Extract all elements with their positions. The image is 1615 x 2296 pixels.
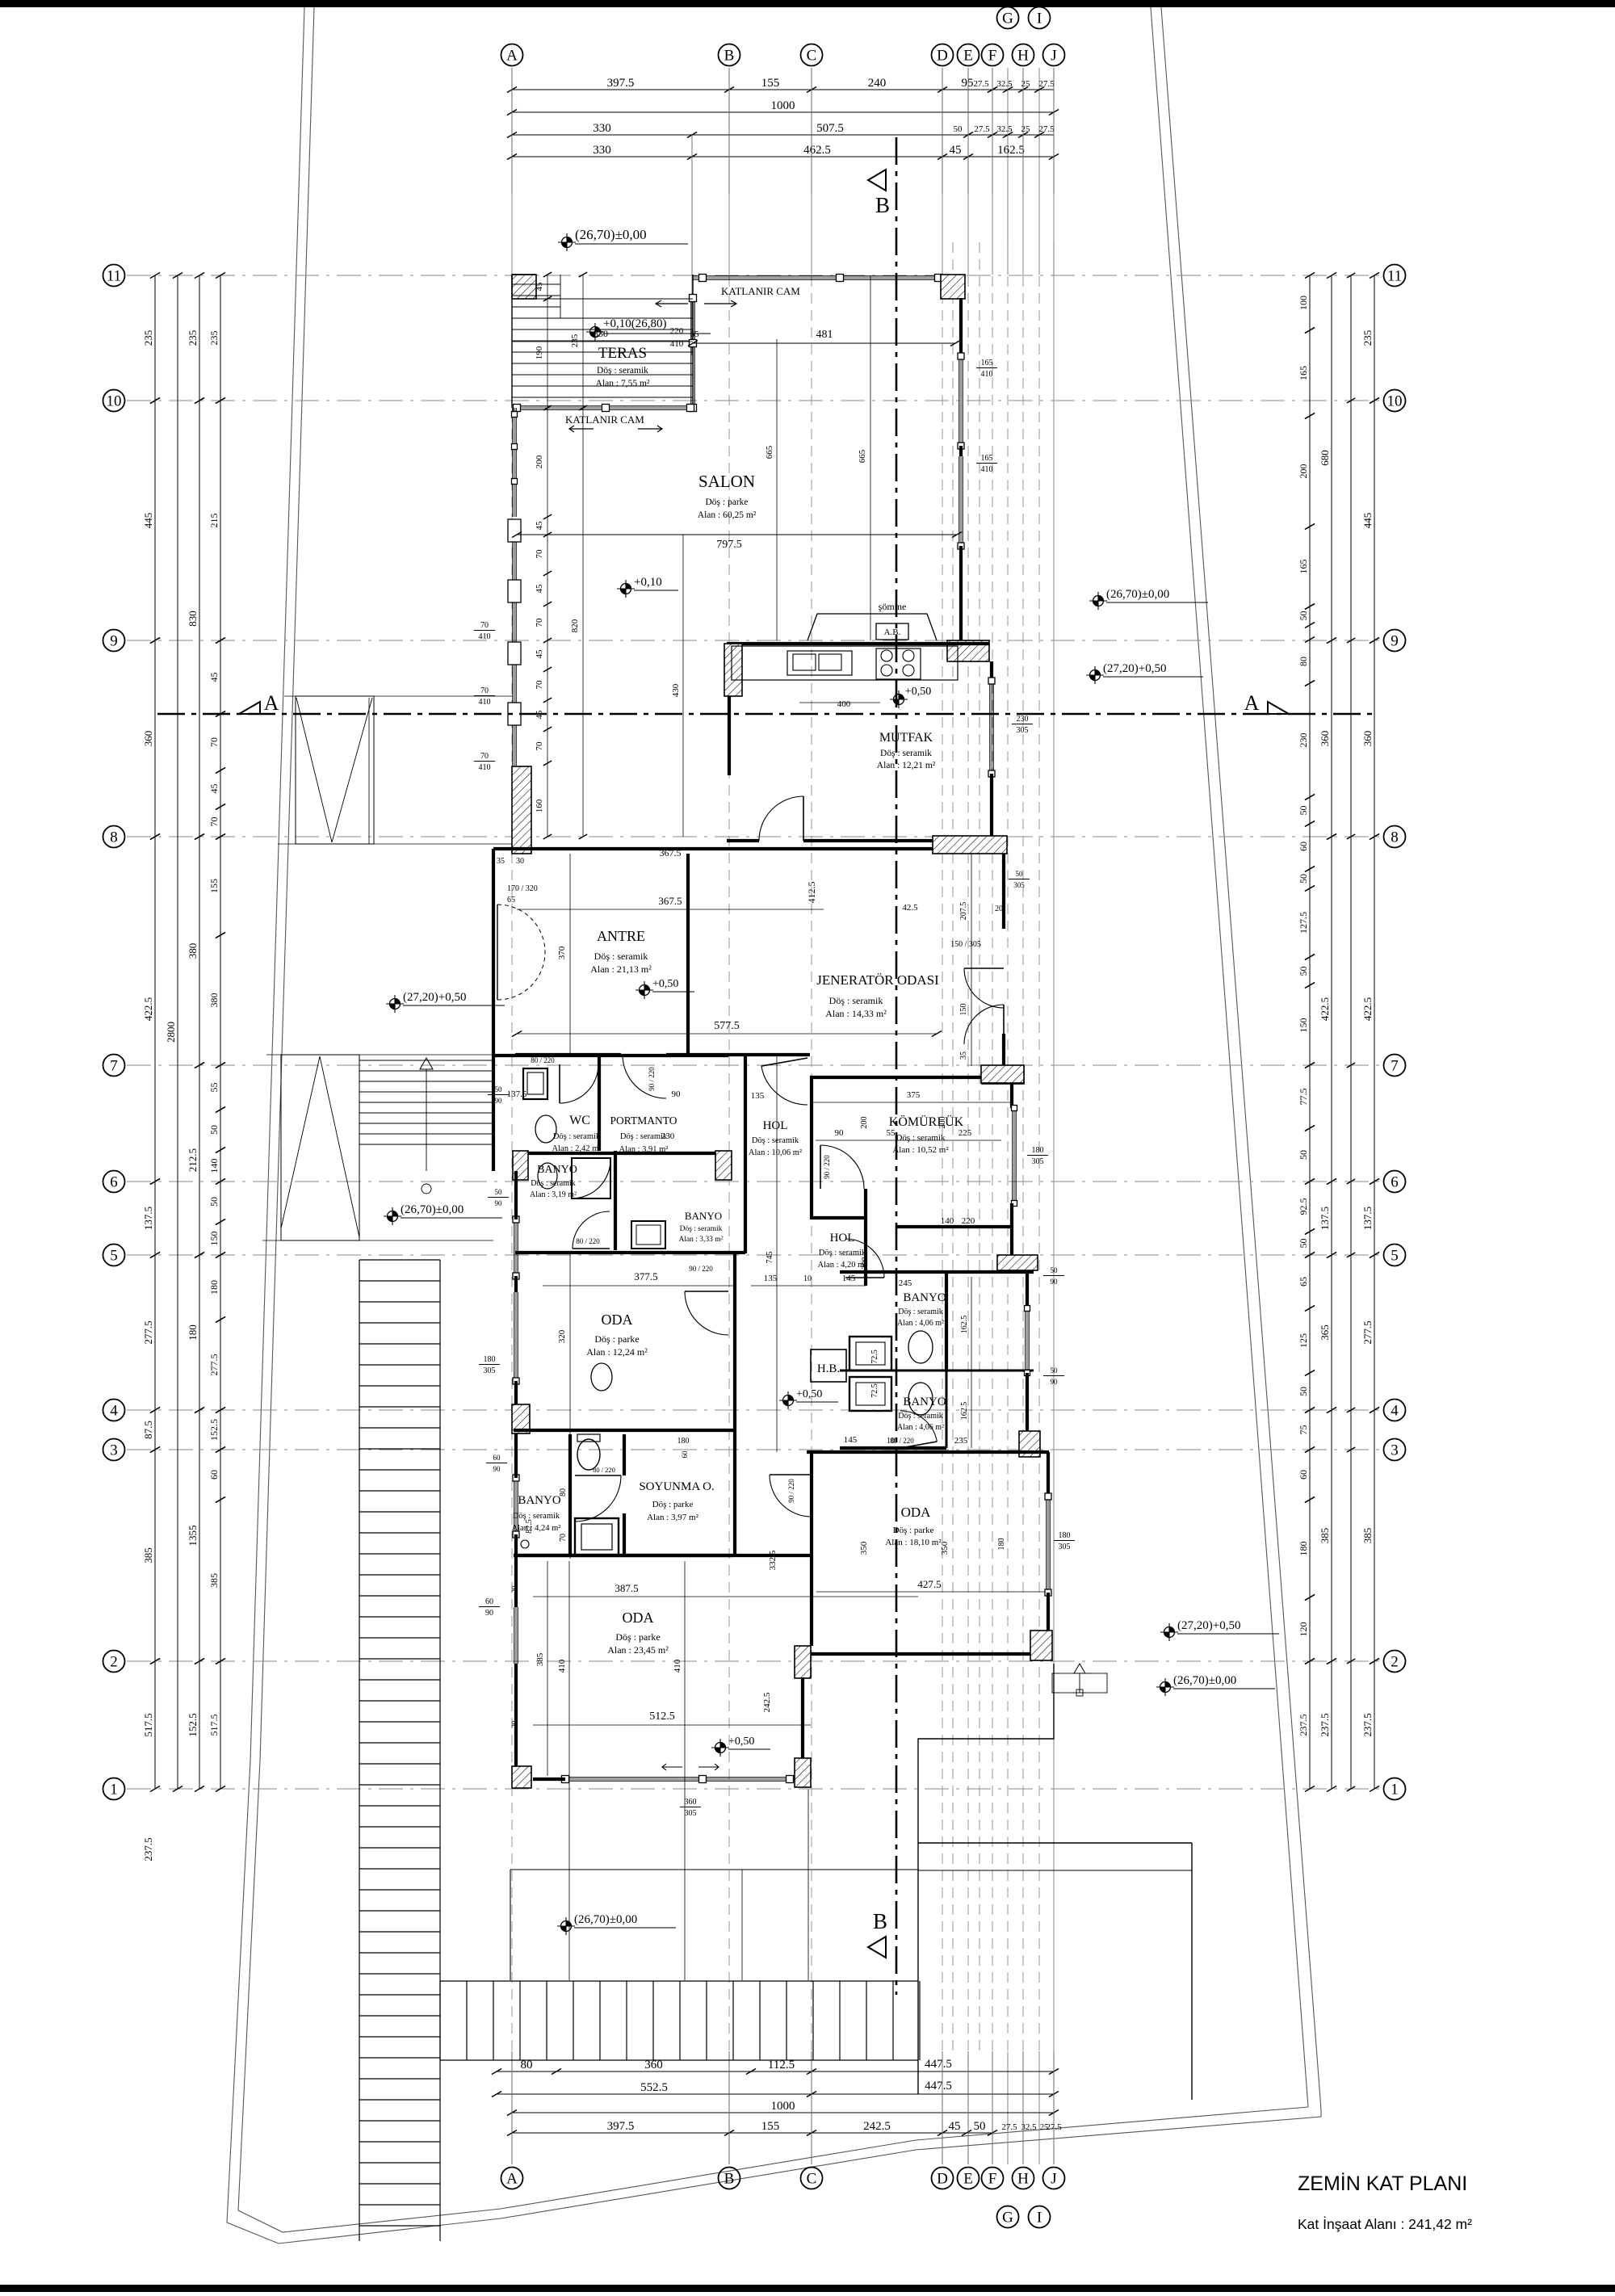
svg-text:82.5: 82.5 (525, 1519, 534, 1534)
svg-text:70: 70 (208, 817, 220, 827)
svg-text:4: 4 (1391, 1402, 1399, 1419)
svg-text:50: 50 (1051, 1266, 1059, 1274)
svg-text:70: 70 (480, 752, 489, 761)
svg-text:5: 5 (1391, 1247, 1399, 1264)
svg-text:332.5: 332.5 (768, 1550, 778, 1570)
svg-text:665: 665 (765, 445, 774, 459)
svg-text:410: 410 (670, 339, 684, 349)
svg-text:360: 360 (1361, 731, 1374, 747)
svg-text:387.5: 387.5 (615, 1582, 638, 1594)
svg-text:360: 360 (685, 1798, 697, 1807)
svg-text:Döş : seramik: Döş : seramik (513, 1512, 560, 1521)
svg-text:50: 50 (1298, 1150, 1309, 1160)
svg-text:HOL: HOL (763, 1119, 788, 1132)
svg-text:SALON: SALON (698, 472, 755, 491)
svg-text:165: 165 (1298, 366, 1309, 380)
svg-text:50: 50 (1298, 1239, 1309, 1249)
svg-text:WC: WC (569, 1114, 590, 1127)
svg-text:Döş : seramik: Döş : seramik (680, 1225, 723, 1233)
svg-text:11: 11 (1387, 267, 1402, 284)
svg-text:180: 180 (208, 1280, 220, 1295)
svg-text:1355: 1355 (187, 1526, 199, 1547)
svg-text:80: 80 (559, 1488, 568, 1496)
svg-text:385: 385 (1361, 1528, 1374, 1544)
svg-text:410: 410 (981, 370, 993, 379)
svg-text:32.5: 32.5 (996, 79, 1013, 89)
svg-text:A: A (264, 691, 279, 715)
svg-text:422.5: 422.5 (142, 997, 154, 1021)
svg-text:(26,70)±0,00: (26,70)±0,00 (1173, 1674, 1236, 1687)
svg-text:237.5: 237.5 (1319, 1713, 1331, 1736)
svg-text:512.5: 512.5 (649, 1710, 675, 1723)
svg-text:ZEMİN KAT PLANI: ZEMİN KAT PLANI (1298, 2172, 1467, 2195)
svg-text:2: 2 (110, 1653, 118, 1670)
svg-text:155: 155 (761, 77, 780, 90)
svg-text:50: 50 (495, 1085, 503, 1093)
svg-text:400: 400 (837, 699, 851, 709)
svg-text:745: 745 (766, 1252, 774, 1264)
svg-text:Döş : parke: Döş : parke (594, 1333, 639, 1345)
svg-text:447.5: 447.5 (925, 2080, 952, 2092)
svg-text:35: 35 (959, 1051, 968, 1060)
svg-text:A: A (506, 2170, 518, 2187)
svg-text:180: 180 (484, 1355, 496, 1364)
svg-text:I: I (1037, 10, 1042, 27)
svg-text:180: 180 (187, 1324, 199, 1341)
svg-text:şömine: şömine (879, 601, 907, 612)
svg-text:170 / 320: 170 / 320 (507, 884, 538, 893)
svg-text:A: A (506, 47, 518, 64)
svg-text:305: 305 (685, 1809, 697, 1818)
svg-text:447.5: 447.5 (925, 2058, 952, 2071)
svg-text:Döş : seramik: Döş : seramik (553, 1132, 601, 1141)
svg-text:165: 165 (981, 359, 993, 367)
svg-text:305: 305 (1032, 1157, 1044, 1166)
svg-text:445: 445 (1361, 513, 1374, 529)
svg-text:180: 180 (997, 1538, 1006, 1551)
svg-text:C: C (807, 2170, 817, 2187)
svg-text:290: 290 (861, 1257, 870, 1270)
svg-text:235: 235 (208, 331, 220, 346)
svg-text:235: 235 (142, 330, 154, 346)
svg-text:410: 410 (479, 632, 491, 641)
svg-text:ANTRE: ANTRE (597, 928, 645, 944)
svg-text:10: 10 (887, 1437, 895, 1446)
svg-text:Alan : 4,06 m²: Alan : 4,06 m² (897, 1319, 944, 1328)
svg-text:7: 7 (110, 1057, 118, 1074)
svg-text:577.5: 577.5 (714, 1020, 740, 1032)
svg-text:665: 665 (858, 449, 867, 463)
svg-text:H.B.: H.B. (817, 1362, 840, 1375)
svg-text:A: A (1244, 691, 1260, 715)
svg-text:90 / 220: 90 / 220 (648, 1067, 656, 1091)
svg-text:45: 45 (950, 144, 962, 157)
svg-text:60: 60 (485, 1597, 493, 1606)
svg-text:385: 385 (142, 1547, 154, 1564)
svg-text:25: 25 (1021, 79, 1031, 89)
svg-text:50: 50 (1298, 967, 1309, 976)
svg-text:90: 90 (493, 1465, 501, 1473)
svg-text:45: 45 (535, 282, 544, 292)
svg-text:207.5: 207.5 (959, 902, 968, 921)
svg-text:PORTMANTO: PORTMANTO (610, 1114, 677, 1127)
svg-text:Alan : 4,06 m²: Alan : 4,06 m² (897, 1423, 944, 1432)
svg-text:212.5: 212.5 (187, 1148, 199, 1172)
svg-text:Alan : 23,45 m²: Alan : 23,45 m² (607, 1644, 669, 1656)
svg-text:200: 200 (1298, 464, 1309, 479)
svg-text:+0,50: +0,50 (652, 978, 678, 990)
svg-text:165: 165 (981, 454, 993, 463)
svg-text:135: 135 (764, 1274, 778, 1283)
svg-text:(26,70)±0,00: (26,70)±0,00 (1106, 588, 1169, 601)
svg-text:50: 50 (208, 1197, 220, 1207)
svg-text:305: 305 (484, 1366, 496, 1375)
svg-text:180: 180 (1059, 1531, 1071, 1540)
svg-text:B: B (875, 193, 890, 217)
svg-text:32.5: 32.5 (996, 124, 1013, 134)
svg-text:162.5: 162.5 (960, 1402, 969, 1421)
svg-text:235: 235 (187, 330, 199, 346)
svg-text:H: H (1017, 2170, 1029, 2187)
svg-text:680: 680 (1319, 450, 1331, 466)
svg-text:Döş : seramik: Döş : seramik (829, 995, 883, 1006)
svg-text:(27,20)+0,50: (27,20)+0,50 (1103, 662, 1166, 675)
svg-text:1000: 1000 (771, 99, 795, 112)
svg-text:380: 380 (187, 943, 199, 959)
svg-text:80: 80 (1298, 657, 1309, 666)
svg-text:410: 410 (479, 698, 491, 707)
svg-text:235: 235 (570, 334, 580, 347)
svg-text:+0,50: +0,50 (796, 1388, 822, 1400)
svg-text:50: 50 (1298, 611, 1309, 621)
svg-text:Alan : 3,97 m²: Alan : 3,97 m² (647, 1513, 698, 1522)
svg-text:137.5: 137.5 (1361, 1207, 1374, 1230)
svg-text:(27,20)+0,50: (27,20)+0,50 (1177, 1619, 1240, 1632)
svg-text:230: 230 (661, 1131, 675, 1141)
svg-text:150: 150 (1298, 1018, 1309, 1033)
svg-text:72.5: 72.5 (870, 1349, 879, 1364)
svg-text:2800: 2800 (165, 1022, 177, 1043)
svg-text:Alan : 14,33 m²: Alan : 14,33 m² (825, 1008, 887, 1019)
svg-text:152.5: 152.5 (208, 1419, 220, 1441)
svg-text:Alan : 3,33 m²: Alan : 3,33 m² (678, 1236, 723, 1244)
svg-text:5: 5 (110, 1247, 118, 1264)
svg-text:367.5: 367.5 (658, 895, 682, 907)
svg-text:20: 20 (510, 1720, 518, 1728)
svg-text:162.5: 162.5 (997, 144, 1025, 157)
svg-text:42.5: 42.5 (902, 903, 918, 913)
svg-text:60: 60 (208, 1470, 220, 1480)
svg-text:70: 70 (535, 680, 544, 690)
svg-text:HOL: HOL (830, 1232, 855, 1245)
svg-text:65: 65 (690, 329, 700, 339)
svg-text:1: 1 (1391, 1781, 1399, 1798)
svg-text:155: 155 (761, 2120, 780, 2133)
svg-text:80 / 220: 80 / 220 (576, 1237, 600, 1245)
svg-text:410: 410 (981, 465, 993, 474)
svg-text:60: 60 (1298, 842, 1309, 851)
svg-text:160: 160 (535, 799, 544, 812)
svg-text:140: 140 (941, 1216, 954, 1226)
svg-text:350: 350 (859, 1541, 869, 1555)
svg-text:215: 215 (208, 514, 220, 528)
svg-text:155: 155 (208, 879, 220, 893)
svg-text:Döş : seramik: Döş : seramik (898, 1308, 943, 1316)
svg-text:237.5: 237.5 (142, 1837, 154, 1861)
svg-text:(27,20)+0,50: (27,20)+0,50 (403, 991, 466, 1004)
svg-text:Alan : 60,25 m²: Alan : 60,25 m² (698, 510, 757, 520)
svg-text:70: 70 (535, 741, 544, 751)
svg-text:F: F (988, 47, 997, 64)
svg-text:F: F (988, 2170, 997, 2187)
svg-text:422.5: 422.5 (1361, 997, 1374, 1021)
svg-text:Döş : seramik: Döş : seramik (594, 951, 648, 962)
svg-text:90: 90 (485, 1609, 493, 1618)
svg-text:C: C (807, 47, 817, 64)
svg-text:50: 50 (1298, 806, 1309, 816)
svg-text:J: J (1051, 47, 1056, 64)
svg-text:100: 100 (1298, 296, 1309, 310)
svg-text:H: H (1017, 47, 1029, 64)
svg-text:JENERATÖR ODASI: JENERATÖR ODASI (816, 972, 939, 988)
svg-text:55: 55 (887, 1128, 896, 1138)
svg-text:Alan : 12,21 m²: Alan : 12,21 m² (877, 761, 936, 770)
svg-text:BANYO: BANYO (903, 1291, 946, 1304)
svg-text:200: 200 (860, 1117, 869, 1129)
svg-text:385: 385 (535, 1652, 545, 1666)
svg-text:145: 145 (842, 1274, 856, 1283)
svg-text:4: 4 (110, 1402, 118, 1419)
svg-text:50: 50 (1298, 874, 1309, 884)
svg-text:27.5: 27.5 (974, 124, 990, 134)
svg-text:242.5: 242.5 (762, 1692, 772, 1712)
svg-text:+0,10: +0,10 (634, 576, 662, 589)
svg-text:242.5: 242.5 (863, 2120, 891, 2133)
svg-text:90: 90 (672, 1089, 682, 1099)
svg-text:365: 365 (1319, 1324, 1331, 1341)
svg-text:237.5: 237.5 (1298, 1715, 1309, 1736)
svg-text:350: 350 (940, 1541, 950, 1555)
svg-text:797.5: 797.5 (716, 539, 742, 551)
svg-text:ODA: ODA (901, 1505, 932, 1520)
svg-text:Alan : 7,55 m²: Alan : 7,55 m² (596, 379, 650, 388)
svg-text:235: 235 (954, 1436, 968, 1446)
svg-text:410: 410 (673, 1659, 682, 1673)
svg-text:150: 150 (959, 1004, 968, 1016)
svg-text:277.5: 277.5 (208, 1354, 220, 1376)
svg-text:462.5: 462.5 (803, 144, 831, 157)
svg-text:Döş : seramik: Döş : seramik (597, 366, 648, 376)
svg-text:Döş : seramik: Döş : seramik (752, 1136, 799, 1145)
svg-text:Alan : 10,52 m²: Alan : 10,52 m² (892, 1145, 949, 1155)
svg-text:6: 6 (1391, 1173, 1399, 1190)
svg-text:507.5: 507.5 (816, 122, 844, 135)
svg-text:10: 10 (1387, 392, 1403, 409)
svg-text:11: 11 (107, 267, 121, 284)
svg-text:27.5: 27.5 (1038, 79, 1055, 89)
svg-text:A.B.: A.B. (884, 628, 901, 637)
svg-text:30: 30 (516, 857, 524, 866)
svg-text:45: 45 (208, 673, 220, 682)
svg-text:481: 481 (816, 329, 833, 341)
svg-text:87.5: 87.5 (142, 1421, 154, 1439)
svg-text:90: 90 (1051, 1378, 1059, 1386)
svg-text:120: 120 (1298, 1622, 1309, 1637)
svg-text:B: B (873, 1909, 887, 1933)
svg-text:6: 6 (110, 1173, 118, 1190)
svg-text:Döş : parke: Döş : parke (893, 1526, 934, 1535)
svg-text:305: 305 (1059, 1543, 1071, 1551)
svg-text:92.5: 92.5 (1298, 1198, 1309, 1215)
svg-text:230: 230 (1017, 715, 1029, 724)
svg-text:Döş : parke: Döş : parke (615, 1631, 660, 1643)
svg-text:9: 9 (110, 632, 118, 649)
svg-text:517.5: 517.5 (142, 1713, 154, 1736)
svg-text:90 / 220: 90 / 220 (787, 1479, 795, 1503)
svg-text:Döş : seramik: Döş : seramik (896, 1133, 946, 1143)
svg-text:235: 235 (1361, 330, 1374, 346)
svg-text:Döş : seramik: Döş : seramik (898, 1412, 943, 1421)
svg-text:277.5: 277.5 (142, 1320, 154, 1344)
svg-text:367.5: 367.5 (660, 847, 682, 858)
svg-text:137.5: 137.5 (1319, 1207, 1331, 1230)
svg-text:412.5: 412.5 (806, 882, 817, 904)
svg-text:J: J (1051, 2170, 1056, 2187)
svg-text:427.5: 427.5 (917, 1578, 941, 1590)
svg-text:35: 35 (497, 857, 505, 866)
svg-text:830: 830 (187, 611, 199, 627)
svg-text:552.5: 552.5 (640, 2081, 668, 2094)
svg-text:10: 10 (107, 392, 122, 409)
svg-text:50: 50 (954, 124, 963, 134)
svg-text:360: 360 (1319, 731, 1331, 747)
svg-text:397.5: 397.5 (607, 77, 635, 90)
svg-text:330: 330 (593, 122, 611, 135)
svg-text:SOYUNMA O.: SOYUNMA O. (639, 1480, 714, 1493)
svg-text:180: 180 (677, 1437, 690, 1446)
svg-text:330: 330 (593, 144, 611, 157)
svg-text:Döş : seramik: Döş : seramik (819, 1249, 866, 1257)
svg-text:Alan : 4,24 m²: Alan : 4,24 m² (512, 1524, 561, 1533)
svg-text:KATLANIR CAM: KATLANIR CAM (565, 413, 644, 426)
svg-text:150: 150 (208, 1232, 220, 1246)
svg-text:385: 385 (208, 1573, 220, 1588)
svg-text:50: 50 (1298, 1387, 1309, 1396)
svg-text:225: 225 (959, 1128, 972, 1138)
svg-text:25: 25 (1021, 124, 1031, 134)
svg-text:380: 380 (208, 993, 220, 1008)
svg-text:320: 320 (557, 1329, 567, 1343)
svg-text:1000: 1000 (771, 2100, 795, 2113)
svg-text:200: 200 (535, 455, 544, 468)
svg-text:BANYO: BANYO (518, 1494, 561, 1507)
svg-text:9: 9 (1391, 632, 1399, 649)
svg-text:140: 140 (208, 1159, 220, 1173)
svg-text:377.5: 377.5 (634, 1270, 657, 1282)
svg-text:E: E (963, 2170, 973, 2187)
svg-text:D: D (937, 47, 948, 64)
svg-text:75: 75 (1298, 1425, 1309, 1435)
svg-text:Döş : parke: Döş : parke (705, 497, 748, 507)
svg-text:(26,70)±0,00: (26,70)±0,00 (401, 1203, 464, 1216)
svg-text:D: D (937, 2170, 948, 2187)
svg-text:27.5: 27.5 (973, 79, 989, 89)
svg-text:60: 60 (493, 1454, 501, 1462)
svg-text:7: 7 (1391, 1057, 1399, 1074)
svg-text:2: 2 (1391, 1653, 1399, 1670)
svg-text:77.5: 77.5 (1298, 1089, 1309, 1106)
svg-text:20: 20 (995, 905, 1003, 913)
svg-text:190: 190 (535, 346, 544, 359)
svg-text:165: 165 (1298, 560, 1309, 574)
svg-text:Alan : 10,06 m²: Alan : 10,06 m² (749, 1148, 802, 1157)
svg-text:220: 220 (962, 1216, 975, 1226)
svg-text:72.5: 72.5 (870, 1383, 879, 1398)
svg-text:135: 135 (751, 1091, 765, 1101)
svg-text:65: 65 (1298, 1277, 1309, 1287)
svg-text:50: 50 (974, 2120, 986, 2133)
svg-text:1: 1 (110, 1781, 118, 1798)
svg-text:+0,50: +0,50 (728, 1736, 754, 1748)
svg-text:Döş : seramik: Döş : seramik (880, 749, 932, 758)
svg-text:125: 125 (1298, 1333, 1309, 1348)
svg-text:45: 45 (208, 784, 220, 794)
svg-text:10: 10 (803, 1274, 812, 1283)
svg-text:20: 20 (510, 1585, 518, 1593)
svg-text:237.5: 237.5 (1361, 1713, 1374, 1736)
svg-text:422.5: 422.5 (1319, 997, 1331, 1021)
svg-text:180: 180 (1032, 1146, 1044, 1155)
svg-text:127.5: 127.5 (1298, 912, 1309, 934)
svg-text:152.5: 152.5 (187, 1713, 199, 1736)
svg-text:45: 45 (535, 521, 544, 531)
svg-text:TERAS: TERAS (598, 345, 647, 362)
svg-text:70: 70 (480, 686, 489, 695)
svg-text:(26,70)±0,00: (26,70)±0,00 (574, 1913, 637, 1926)
svg-text:50: 50 (1016, 870, 1024, 878)
svg-text:60: 60 (1298, 1470, 1309, 1480)
svg-text:Alan : 12,24 m²: Alan : 12,24 m² (586, 1346, 648, 1358)
svg-text:410: 410 (557, 1659, 567, 1673)
svg-text:8: 8 (110, 829, 118, 846)
svg-text:I: I (1037, 2209, 1042, 2226)
svg-text:90: 90 (835, 1128, 845, 1138)
svg-text:B: B (724, 47, 735, 64)
svg-text:Alan : 21,13 m²: Alan : 21,13 m² (590, 963, 652, 975)
svg-text:305: 305 (1013, 881, 1025, 889)
svg-text:70: 70 (559, 1534, 568, 1542)
svg-text:430: 430 (671, 683, 681, 697)
svg-text:145: 145 (844, 1435, 858, 1445)
svg-text:B: B (724, 2170, 735, 2187)
svg-text:162.5: 162.5 (960, 1316, 969, 1334)
svg-text:45: 45 (535, 584, 544, 594)
svg-text:Alan : 3,19 m²: Alan : 3,19 m² (530, 1190, 577, 1199)
svg-text:820: 820 (570, 619, 580, 632)
svg-text:90: 90 (1051, 1278, 1059, 1286)
svg-text:Kat İnşaat Alanı : 241,42 m²: Kat İnşaat Alanı : 241,42 m² (1298, 2216, 1472, 2232)
svg-text:27.5: 27.5 (1038, 124, 1055, 134)
svg-text:70: 70 (535, 549, 544, 559)
svg-text:70: 70 (208, 737, 220, 747)
svg-text:3: 3 (110, 1442, 118, 1459)
svg-text:360: 360 (142, 731, 154, 747)
svg-text:+0,10(26,80): +0,10(26,80) (603, 317, 666, 330)
svg-text:G: G (1002, 2209, 1013, 2226)
svg-text:27.5: 27.5 (1001, 2122, 1017, 2132)
svg-text:60: 60 (681, 1450, 689, 1459)
svg-text:230: 230 (1298, 733, 1309, 748)
